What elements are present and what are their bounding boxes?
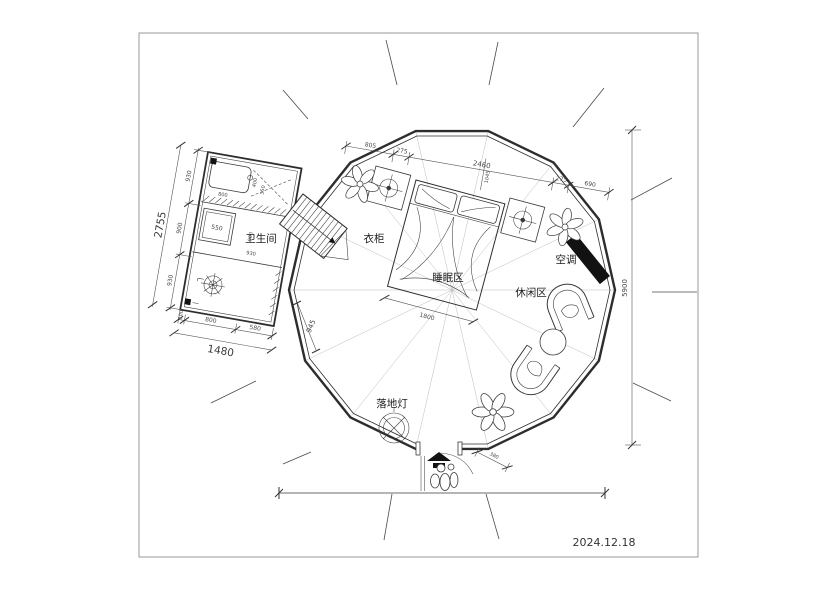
drawing-date: 2024.12.18	[573, 536, 636, 549]
label-sleeping-area: 睡眠区	[432, 271, 464, 284]
label-floor-lamp: 落地灯	[376, 397, 408, 410]
label-bathroom: 卫生间	[245, 232, 277, 245]
side-table	[540, 329, 566, 355]
column-top	[210, 158, 217, 165]
label-leisure-area: 休闲区	[515, 286, 547, 299]
label-ac: 空调	[556, 253, 577, 266]
dim-5900: 5900	[621, 279, 629, 297]
shower: 550	[199, 208, 236, 245]
column-bottom	[184, 298, 191, 305]
floorplan-canvas: 5900 805 275 2460 275 690 1045	[0, 0, 837, 592]
label-wardrobe: 衣柜	[364, 232, 385, 245]
floorplan-page: 5900 805 275 2460 275 690 1045	[0, 0, 837, 592]
door-jamb-left	[416, 442, 420, 455]
door-jamb-right	[458, 442, 462, 455]
